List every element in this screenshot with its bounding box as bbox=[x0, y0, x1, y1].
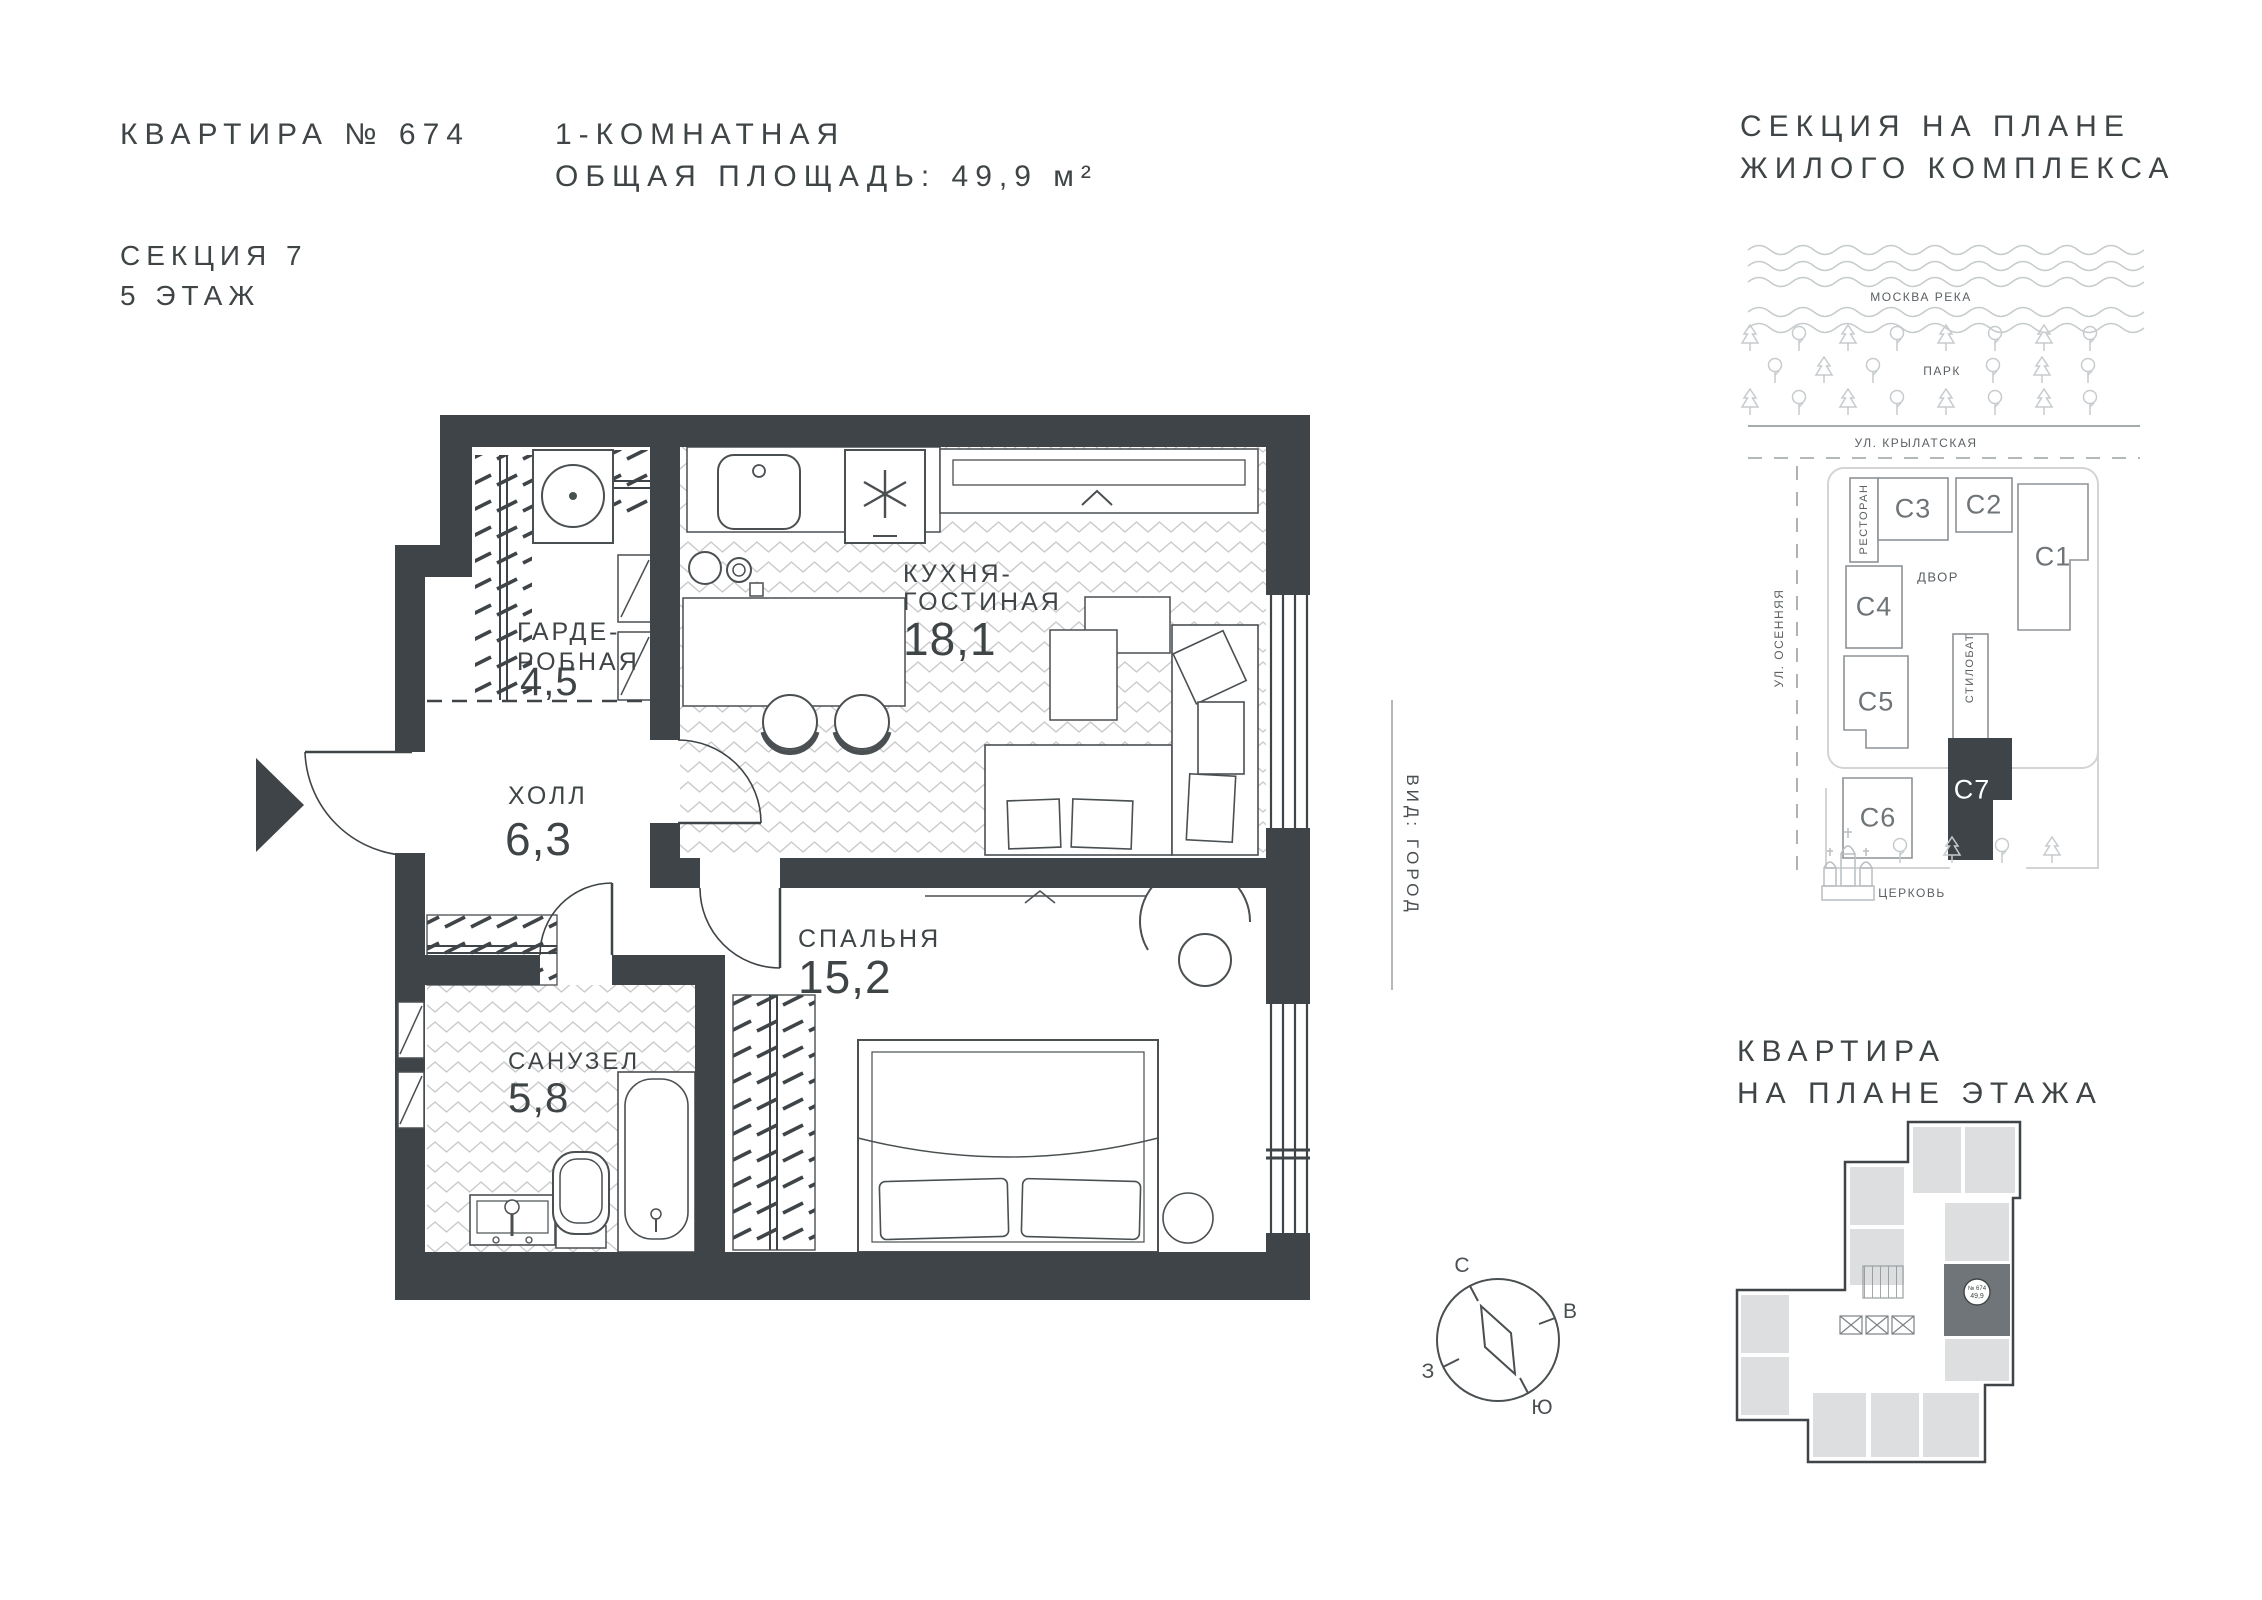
mini-floor-plan: № 674 49,9 bbox=[1737, 1122, 2020, 1462]
window bbox=[1266, 1004, 1310, 1233]
restaurant-label: РЕСТОРАН bbox=[1858, 484, 1870, 555]
bedside-table-icon bbox=[1163, 1193, 1213, 1243]
stair-core bbox=[1863, 1266, 1903, 1298]
mini-plan-title-line1: КВАРТИРА bbox=[1737, 1035, 1946, 1069]
compass-icon bbox=[1437, 1279, 1559, 1401]
floor-label: 5 ЭТАЖ bbox=[120, 280, 260, 312]
section-c5-label: С5 bbox=[1858, 687, 1895, 718]
bar-chair-icon bbox=[835, 695, 889, 753]
bedroom-wardrobe bbox=[733, 995, 815, 1250]
fridge-icon bbox=[845, 450, 925, 543]
unit-badge: № 674 49,9 bbox=[1964, 1279, 1990, 1305]
church-label: ЦЕРКОВЬ bbox=[1878, 886, 1945, 900]
compass-west: З bbox=[1422, 1360, 1435, 1384]
street-left-label: УЛ. ОСЕННЯЯ bbox=[1772, 589, 1786, 688]
courtyard-label: ДВОР bbox=[1917, 570, 1959, 585]
river-icon bbox=[1748, 246, 2144, 333]
window-sill bbox=[925, 891, 1158, 903]
room-bathroom-name: САНУЗЕЛ bbox=[508, 1048, 640, 1076]
floorplan-page: № 674 49,9 КВАРТИРА № 674 1-КОМНАТНАЯ ОБ… bbox=[0, 0, 2262, 1600]
compass-north: С bbox=[1454, 1254, 1469, 1278]
section-c6-label: С6 bbox=[1860, 803, 1897, 834]
compass-east: В bbox=[1563, 1300, 1577, 1324]
room-wardrobe-area: 4,5 bbox=[520, 660, 579, 705]
park-trees-icon bbox=[1742, 325, 2097, 415]
window bbox=[1271, 595, 1307, 828]
section-c4-label: С4 bbox=[1856, 592, 1893, 623]
apartment-number-title: КВАРТИРА № 674 bbox=[120, 118, 470, 152]
bar-chair-icon bbox=[763, 695, 817, 753]
room-wardrobe-line1: ГАРДЕ- bbox=[517, 618, 620, 647]
plan-graphics: № 674 49,9 bbox=[0, 0, 2262, 1600]
svg-text:№ 674: № 674 bbox=[1968, 1285, 1987, 1292]
section-c2-label: С2 bbox=[1966, 490, 2003, 521]
section-c3-label: С3 bbox=[1895, 494, 1932, 525]
section-c7-label: С7 bbox=[1954, 775, 1991, 806]
top-closet bbox=[940, 449, 1258, 513]
apartment-type: 1-КОМНАТНАЯ bbox=[555, 118, 845, 152]
room-bathroom-area: 5,8 bbox=[508, 1074, 569, 1122]
mini-plan-title-line2: НА ПЛАНЕ ЭТАЖА bbox=[1737, 1077, 2103, 1111]
stylobate-label: СТИЛОБАТ bbox=[1964, 633, 1976, 703]
site-plan-title-line1: СЕКЦИЯ НА ПЛАНЕ bbox=[1740, 110, 2131, 144]
room-hall-area: 6,3 bbox=[505, 812, 572, 866]
room-hall-name: ХОЛЛ bbox=[508, 782, 588, 811]
view-label: ВИД: ГОРОД bbox=[1402, 774, 1422, 915]
park-label: ПАРК bbox=[1923, 364, 1961, 378]
bed-icon bbox=[858, 1040, 1158, 1252]
site-plan-title-line2: ЖИЛОГО КОМПЛЕКСА bbox=[1740, 152, 2175, 186]
compass-south: Ю bbox=[1531, 1396, 1552, 1420]
section-label: СЕКЦИЯ 7 bbox=[120, 240, 308, 272]
room-kitchen-area: 18,1 bbox=[903, 612, 997, 666]
river-label: МОСКВА РЕКА bbox=[1870, 290, 1971, 304]
entry-arrow-icon bbox=[256, 758, 304, 852]
washer-icon bbox=[533, 450, 613, 543]
toilet-icon bbox=[553, 1152, 609, 1248]
entry-door bbox=[305, 752, 412, 855]
room-bedroom-area: 15,2 bbox=[798, 950, 892, 1004]
cabinet-doors bbox=[618, 555, 652, 700]
island-counter bbox=[683, 598, 905, 706]
section-c1-label: С1 bbox=[2035, 542, 2072, 573]
total-area: ОБЩАЯ ПЛОЩАДЬ: 49,9 м² bbox=[555, 160, 1098, 194]
room-kitchen-line1: КУХНЯ- bbox=[903, 560, 1013, 589]
elevator-icons bbox=[1840, 1316, 1914, 1334]
svg-text:49,9: 49,9 bbox=[1970, 1293, 1984, 1300]
vanity-icon bbox=[470, 1195, 555, 1245]
bath-icon bbox=[618, 1072, 695, 1252]
street-top-label: УЛ. КРЫЛАТСКАЯ bbox=[1855, 436, 1978, 450]
